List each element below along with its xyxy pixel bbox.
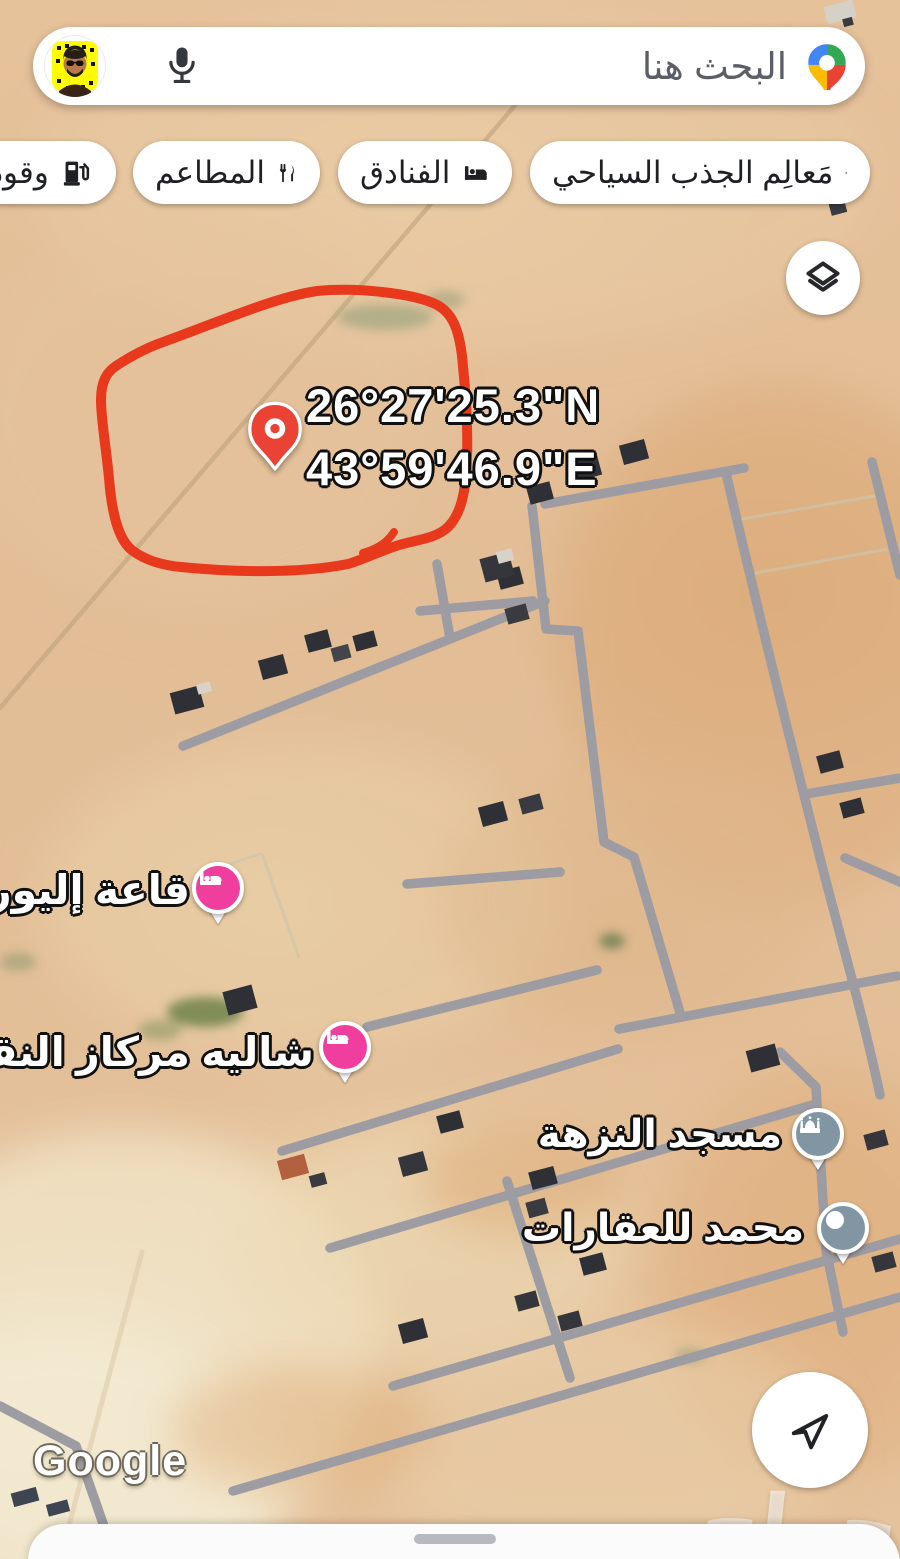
bottom-sheet[interactable] (28, 1524, 900, 1559)
poi-pin-lodging-2[interactable] (319, 1021, 371, 1073)
poi-label-mosque: مسجد النزهة (560, 1112, 782, 1157)
hotels-icon (462, 156, 490, 190)
poi-label-lodging-2: شاليه مركاز النقيب (2, 1028, 314, 1076)
poi-label-lodging-1: قاعة إليور (18, 866, 190, 914)
mic-icon[interactable] (161, 45, 203, 87)
poi-label-place: محمد للعقارات (552, 1206, 804, 1251)
poi-pin-place[interactable] (817, 1202, 869, 1254)
layers-icon (804, 259, 842, 297)
coordinates-label: 26°27'25.3"N 43°59'46.9"E (306, 374, 586, 500)
navigation-arrow-icon (784, 1404, 836, 1456)
layers-button[interactable] (786, 241, 860, 315)
map-satellite-layer (0, 0, 900, 1559)
chip-restaurants[interactable]: المطاعم (133, 141, 320, 204)
search-placeholder: البحث هنا (642, 27, 787, 105)
attractions-icon (845, 156, 848, 190)
fuel-icon (61, 157, 93, 189)
bed-icon (192, 862, 244, 914)
poi-pin-mosque[interactable] (792, 1108, 844, 1160)
navigation-button[interactable] (752, 1372, 868, 1488)
chip-attractions[interactable]: مَعالِم الجذب السياحي (530, 141, 870, 204)
google-maps-screen: 26°27'25.3"N 43°59'46.9"E قاعة إليور (0, 0, 900, 1559)
map-canvas[interactable]: 26°27'25.3"N 43°59'46.9"E قاعة إليور (0, 0, 900, 1559)
search-input[interactable]: البحث هنا (33, 27, 865, 105)
chip-label: المطاعم (155, 155, 265, 191)
poi-pin-lodging-1[interactable] (192, 862, 244, 914)
terrain-patches (0, 10, 900, 1559)
google-attribution: Google (33, 1437, 187, 1486)
longitude-text: 43°59'46.9"E (306, 437, 586, 500)
snapchat-avatar[interactable] (44, 35, 106, 97)
mosque-icon (792, 1108, 844, 1160)
bed-icon (319, 1021, 371, 1073)
google-maps-logo-icon (803, 42, 851, 90)
restaurants-icon (277, 157, 298, 189)
bottom-sheet-handle[interactable] (414, 1534, 496, 1544)
chip-fuel[interactable]: وقود (0, 141, 116, 204)
chip-hotels[interactable]: الفنادق (338, 141, 512, 204)
latitude-text: 26°27'25.3"N (306, 374, 586, 437)
chip-label: وقود (0, 155, 49, 191)
chip-label: الفنادق (360, 155, 450, 191)
chip-label: مَعالِم الجذب السياحي (552, 155, 833, 191)
red-location-pin[interactable] (247, 401, 303, 471)
dot-icon (817, 1202, 869, 1254)
